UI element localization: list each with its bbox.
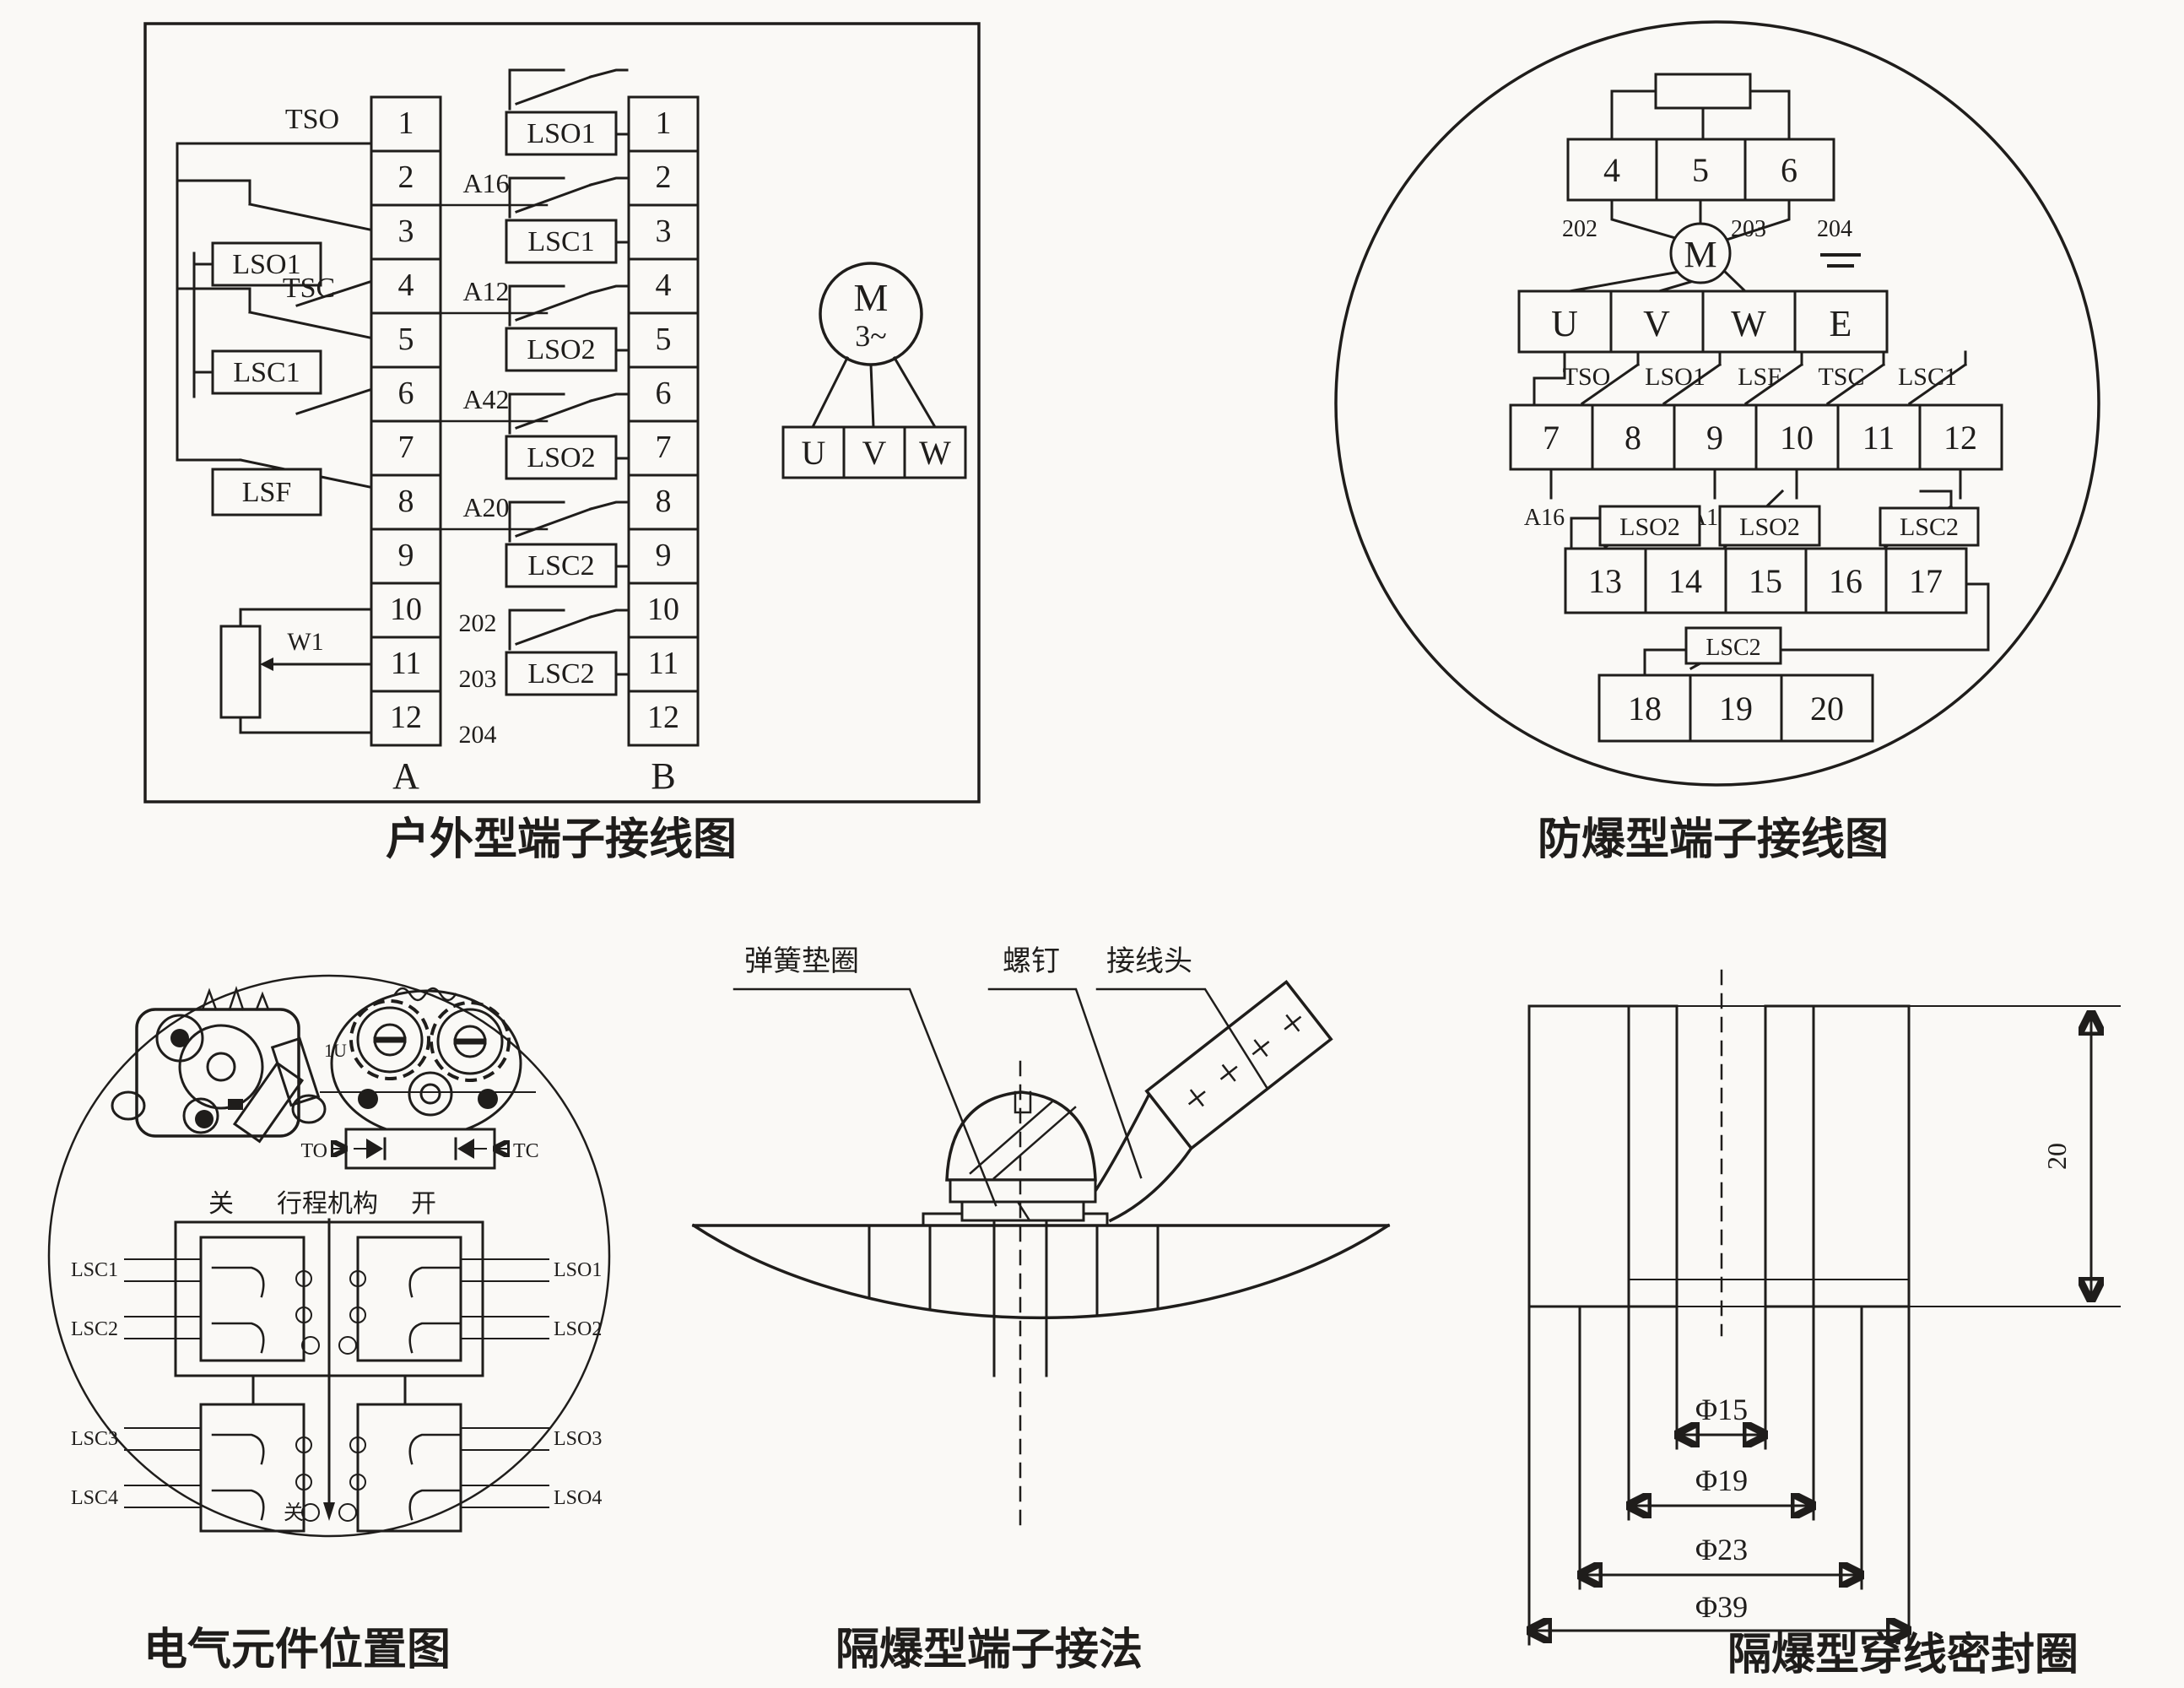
terminal-number: 8 <box>1624 419 1641 457</box>
terminal-letter: U <box>1551 303 1578 344</box>
terminal-strip-b: 1 2 3 4 5 6 7 8 9 10 11 12 <box>629 97 698 745</box>
wire-number: A16 <box>462 168 509 198</box>
terminal-number: 4 <box>398 268 414 303</box>
limit-switch-label: LSO1 <box>554 1259 602 1281</box>
terminal-number: 20 <box>1810 690 1844 728</box>
terminal-number: 14 <box>1668 562 1702 600</box>
strip-a-name: A <box>392 755 419 797</box>
switch-label: LSO1 <box>527 118 595 149</box>
potentiometer-symbol <box>221 626 260 717</box>
caption-components: 电气元件位置图 <box>143 1626 451 1674</box>
enclosure-circle <box>1336 22 2099 785</box>
cover-plate <box>923 1214 1107 1376</box>
diameter-dimension: Φ23 <box>1695 1533 1748 1566</box>
wire-number: 204 <box>1817 216 1852 242</box>
potentiometer-label: W1 <box>287 628 323 656</box>
diameter-dimension: Φ19 <box>1695 1463 1748 1497</box>
switch-label: LSO2 <box>527 334 595 365</box>
terminal-number: 8 <box>398 484 414 519</box>
terminal-number: 9 <box>656 538 672 573</box>
terminal-number: 7 <box>656 430 672 465</box>
panel-explosion-proof-wiring: 4 5 6 202 203 204 M U V W E TSO LSO1 LSF… <box>1336 22 2099 864</box>
terminal-number: 18 <box>1628 690 1662 728</box>
terminal-number: 7 <box>398 430 414 465</box>
switch-label: LSF <box>1738 363 1781 391</box>
limit-switch-label: LSC2 <box>71 1318 118 1340</box>
switch-label: LSO2 <box>1739 513 1800 541</box>
switch-label: TSO <box>1563 363 1611 391</box>
wire-number: 204 <box>459 721 497 749</box>
height-dimension: 20 <box>2041 1143 2072 1170</box>
switch-label: LSO1 <box>1645 363 1706 391</box>
terminal-number: 11 <box>391 646 422 681</box>
terminal-number: 5 <box>398 322 414 357</box>
switch-label: LSC1 <box>233 357 300 388</box>
panel-component-positions: 1U TO TC 关 行程机构 开 <box>49 976 609 1674</box>
switch-label: TSC <box>1818 363 1864 391</box>
terminal-number: 3 <box>656 214 672 249</box>
terminal-lug <box>1090 982 1331 1220</box>
caption-connection: 隔爆型端子接法 <box>835 1626 1143 1674</box>
switch-label: TSC <box>283 273 335 304</box>
strip-b-name: B <box>651 755 675 797</box>
seal-section <box>1529 971 2120 1335</box>
terminal-number: 7 <box>1543 419 1560 457</box>
motor-symbol: M 3~ U V W <box>783 263 965 478</box>
terminal-number: 6 <box>656 376 672 411</box>
switch-label: LSC2 <box>1706 635 1760 661</box>
wire-number: A20 <box>462 492 509 522</box>
terminal-number: 8 <box>656 484 672 519</box>
terminal-number: 9 <box>1706 419 1723 457</box>
terminal-letter: E <box>1830 303 1852 344</box>
wire-number: 202 <box>459 609 497 637</box>
caption-seal-ring: 隔爆型穿线密封圈 <box>1727 1631 2079 1680</box>
terminal-number: 9 <box>398 538 414 573</box>
terminal-number: 12 <box>390 700 422 735</box>
terminal-number: 10 <box>647 592 679 627</box>
switch-label: LSC2 <box>527 658 594 690</box>
terminal-letter: V <box>1643 303 1670 344</box>
cam-mechanism <box>112 989 325 1141</box>
motor-phase: 3~ <box>855 319 886 353</box>
limit-switch-label: LSO4 <box>554 1487 602 1509</box>
terminal-number: 2 <box>656 160 672 195</box>
terminal-number: 10 <box>390 592 422 627</box>
panel-outdoor-wiring: TSO LSO1 TSC LSC1 LSF W1 A16 A12 A42 A20… <box>145 24 979 864</box>
axis-close-label: 关 <box>208 1190 234 1218</box>
terminal-number: 4 <box>656 268 672 303</box>
upper-limit-switch-block <box>125 1222 549 1376</box>
dimension-lines <box>1529 1013 2091 1644</box>
switch-label: LSF <box>242 477 292 508</box>
diameter-dimension: Φ39 <box>1695 1590 1748 1624</box>
diameter-dimension: Φ15 <box>1695 1393 1748 1426</box>
terminal-number: 10 <box>1780 419 1814 457</box>
terminal-number: 1 <box>656 105 672 141</box>
terminal-number: 15 <box>1749 562 1782 600</box>
limit-switch-label: LSC3 <box>71 1428 118 1450</box>
wire-number: A12 <box>462 276 509 306</box>
wire-number: 202 <box>1562 216 1597 242</box>
terminal-number: 6 <box>1781 151 1797 189</box>
terminal-number: 3 <box>398 214 414 249</box>
motor-terminal: W <box>919 434 951 472</box>
caption-explosion: 防爆型端子接线图 <box>1538 815 1889 864</box>
motor-letter: M <box>1684 234 1716 275</box>
limit-switch-label: LSO2 <box>554 1318 602 1340</box>
limit-switch-label: LSO3 <box>554 1428 602 1450</box>
motor-terminal: U <box>802 434 826 472</box>
terminal-number: 1 <box>398 105 414 141</box>
terminal-number: 19 <box>1719 690 1753 728</box>
axis-open-label: 开 <box>411 1190 436 1218</box>
terminal-number: 17 <box>1909 562 1943 600</box>
wire-number: 203 <box>459 665 497 693</box>
terminal-strip-a: 1 2 3 4 5 6 7 8 9 10 11 12 <box>371 97 441 745</box>
torque-close-label: TC <box>513 1140 539 1162</box>
torque-open-label: TO <box>300 1140 327 1162</box>
terminal-number: 11 <box>648 646 679 681</box>
limit-switch-label: LSC4 <box>71 1487 118 1509</box>
travel-mechanism-label: 行程机构 <box>277 1190 378 1218</box>
terminal-number: 2 <box>398 160 414 195</box>
lug-label: 接线头 <box>1106 945 1192 977</box>
switch-label: LSC1 <box>527 226 594 257</box>
switch-label: LSO2 <box>527 442 595 473</box>
terminal-number: 12 <box>1943 419 1977 457</box>
wire-number: 203 <box>1731 216 1766 242</box>
limit-switch-label: LSC1 <box>71 1259 118 1281</box>
spring-washer-label: 弹簧垫圈 <box>744 945 859 977</box>
screw-label: 螺钉 <box>1003 945 1060 977</box>
wire-number: A16 <box>1524 505 1565 531</box>
terminal-number: 5 <box>656 322 672 357</box>
panel-seal-ring: 20 Φ15 Φ19 Φ23 Φ39 隔爆型穿线密封圈 <box>1529 971 2120 1680</box>
switch-label: LSC1 <box>1898 363 1957 391</box>
terminal-number: 13 <box>1588 562 1622 600</box>
switch-label: LSC2 <box>527 550 594 582</box>
terminal-number: 6 <box>398 376 414 411</box>
switch-label: LSC2 <box>1900 513 1959 541</box>
sealing-body-outline <box>694 1225 1388 1317</box>
terminal-letter: W <box>1731 303 1766 344</box>
scanned-diagram-sheet: TSO LSO1 TSC LSC1 LSF W1 A16 A12 A42 A20… <box>0 0 2184 1688</box>
wire-number: A42 <box>462 384 509 414</box>
panel-terminal-connection: 弹簧垫圈 螺钉 接线头 隔爆型端子接法 <box>694 945 1388 1674</box>
torque-switch-box <box>332 1129 508 1168</box>
torque-mechanism <box>321 988 535 1136</box>
sealing-body-hatch <box>694 1225 1388 1529</box>
shaft-direction-label: 关 <box>284 1501 304 1524</box>
caption-outdoor: 户外型端子接线图 <box>386 815 737 864</box>
motor-letter: M <box>854 276 889 319</box>
terminal-number: 12 <box>647 700 679 735</box>
terminal-number: 16 <box>1829 562 1862 600</box>
motor-terminal: V <box>862 434 887 472</box>
switch-label: LSO2 <box>1619 513 1680 541</box>
terminal-number: 5 <box>1692 151 1709 189</box>
terminal-number: 11 <box>1862 419 1895 457</box>
terminal-number: 4 <box>1603 151 1620 189</box>
switch-label: TSO <box>285 104 339 135</box>
diagram-canvas: TSO LSO1 TSC LSC1 LSF W1 A16 A12 A42 A20… <box>0 0 2184 1688</box>
